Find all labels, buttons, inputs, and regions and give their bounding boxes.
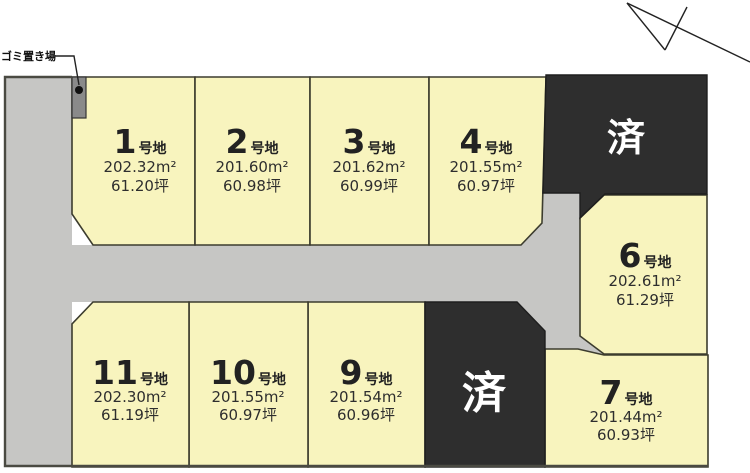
sold-label-bottom: 済 (462, 368, 507, 419)
sold-label-top: 済 (607, 116, 646, 160)
lot-9-tsubo: 60.96坪 (337, 406, 395, 424)
lot-7-tsubo: 60.93坪 (597, 426, 655, 444)
corner-line-left (627, 3, 665, 50)
lot-10-number-suffix: 号地 (258, 371, 286, 388)
lot-7-number-suffix: 号地 (624, 391, 652, 408)
lot-11-tsubo: 61.19坪 (101, 406, 159, 424)
corner-line-right (665, 7, 687, 50)
lot-7-number-value: 7 (600, 373, 623, 412)
lot-3-number-suffix: 号地 (367, 140, 395, 157)
garbage-dot (75, 86, 83, 94)
road-left (5, 77, 72, 467)
road-stub (543, 193, 580, 350)
lot-2-number-value: 2 (226, 122, 249, 161)
lot-4-number-value: 4 (460, 122, 483, 161)
lot-1-number-suffix: 号地 (138, 140, 166, 157)
lot-9-number-value: 9 (340, 353, 363, 392)
lot-7-area: 201.44m² (589, 408, 662, 426)
lot-6-area: 202.61m² (608, 272, 681, 290)
lot-9-number-suffix: 号地 (364, 371, 392, 388)
lot-1-number-value: 1 (114, 122, 137, 161)
lot-11-number-value: 11 (92, 353, 138, 392)
lot-3-number-value: 3 (343, 122, 366, 161)
lot-1-area: 202.32m² (103, 158, 176, 176)
lot-10-number-value: 10 (210, 353, 256, 392)
road-main (72, 245, 580, 302)
site-plan-image: 済 済 1号地 202.32m² 61.20坪 2号地 201.60m² 60.… (0, 0, 750, 473)
site-plan-svg: 済 済 1号地 202.32m² 61.20坪 2号地 201.60m² 60.… (0, 0, 750, 473)
lot-9-area: 201.54m² (329, 388, 402, 406)
lot-6-number-value: 6 (619, 236, 642, 275)
lot-4-number-suffix: 号地 (484, 140, 512, 157)
lot-10-tsubo: 60.97坪 (219, 406, 277, 424)
lot-3-area: 201.62m² (332, 158, 405, 176)
lot-1-tsubo: 61.20坪 (111, 177, 169, 195)
lot-6-tsubo: 61.29坪 (616, 291, 674, 309)
lot-10-area: 201.55m² (211, 388, 284, 406)
lot-2-tsubo: 60.98坪 (223, 177, 281, 195)
lot-4-area: 201.55m² (449, 158, 522, 176)
lot-11-area: 202.30m² (93, 388, 166, 406)
lot-6-number-suffix: 号地 (643, 254, 671, 271)
lot-2-area: 201.60m² (215, 158, 288, 176)
corner-line-long (627, 3, 750, 62)
lot-3-tsubo: 60.99坪 (340, 177, 398, 195)
corner-decoration (627, 3, 750, 62)
garbage-label: ゴミ置き場 (1, 49, 56, 63)
lot-4-tsubo: 60.97坪 (457, 177, 515, 195)
lot-11-number-suffix: 号地 (140, 371, 168, 388)
lot-2-number-suffix: 号地 (250, 140, 278, 157)
